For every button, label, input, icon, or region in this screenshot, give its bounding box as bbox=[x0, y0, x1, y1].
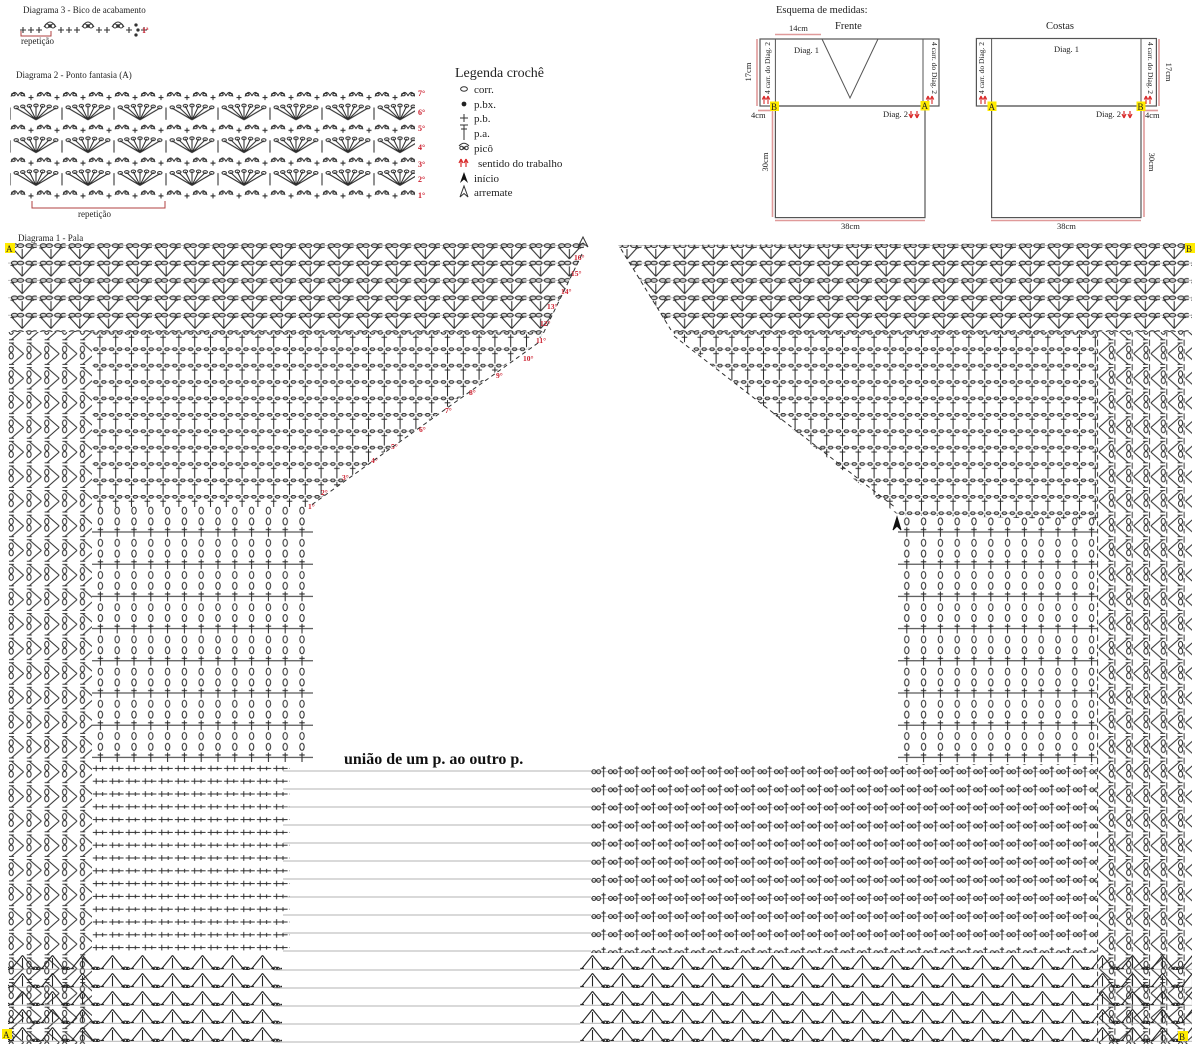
svg-text:Diag. 2: Diag. 2 bbox=[1096, 109, 1121, 119]
svg-text:Costas: Costas bbox=[1046, 21, 1074, 32]
svg-text:13°: 13° bbox=[547, 302, 558, 311]
svg-text:4cm: 4cm bbox=[1145, 110, 1160, 120]
svg-text:início: início bbox=[474, 173, 500, 185]
svg-text:picô: picô bbox=[474, 143, 493, 155]
svg-text:4 carr. do Diag. 2: 4 carr. do Diag. 2 bbox=[977, 42, 986, 94]
svg-text:A: A bbox=[3, 1030, 10, 1040]
svg-text:p.a.: p.a. bbox=[474, 128, 490, 140]
svg-text:Diagrama 3 - Bico de acabament: Diagrama 3 - Bico de acabamento bbox=[23, 5, 146, 15]
svg-text:16°: 16° bbox=[574, 253, 585, 262]
svg-text:A: A bbox=[989, 102, 996, 112]
svg-text:5°: 5° bbox=[391, 442, 398, 451]
svg-text:2°: 2° bbox=[418, 175, 425, 184]
svg-text:5°: 5° bbox=[418, 124, 425, 133]
svg-text:7°: 7° bbox=[418, 89, 425, 98]
svg-text:repetição: repetição bbox=[21, 36, 54, 46]
svg-text:9°: 9° bbox=[496, 371, 503, 380]
svg-text:p.b.: p.b. bbox=[474, 113, 491, 125]
svg-text:corr.: corr. bbox=[474, 84, 494, 96]
svg-text:Diag. 2: Diag. 2 bbox=[883, 109, 908, 119]
svg-text:4 carr. do Diag. 2: 4 carr. do Diag. 2 bbox=[763, 42, 772, 94]
svg-text:Legenda crochê: Legenda crochê bbox=[455, 66, 544, 81]
svg-text:B: B bbox=[771, 102, 777, 112]
svg-text:Esquema de medidas:: Esquema de medidas: bbox=[776, 5, 868, 16]
svg-text:arremate: arremate bbox=[474, 187, 513, 199]
svg-text:Diag. 1: Diag. 1 bbox=[1054, 44, 1079, 54]
svg-text:4 carr. do Diag. 2: 4 carr. do Diag. 2 bbox=[930, 42, 939, 94]
svg-text:Diag. 1: Diag. 1 bbox=[794, 45, 819, 55]
svg-text:14cm: 14cm bbox=[789, 23, 808, 33]
svg-text:A: A bbox=[922, 101, 929, 111]
svg-text:14°: 14° bbox=[561, 287, 572, 296]
svg-text:4 carr. do Diag. 2: 4 carr. do Diag. 2 bbox=[1146, 42, 1155, 94]
svg-text:Diagrama 1 - Pala: Diagrama 1 - Pala bbox=[18, 233, 83, 243]
svg-text:17cm: 17cm bbox=[743, 62, 753, 81]
svg-text:38cm: 38cm bbox=[1057, 221, 1076, 231]
svg-text:3°: 3° bbox=[418, 160, 425, 169]
svg-text:6°: 6° bbox=[419, 425, 426, 434]
svg-text:B: B bbox=[1186, 244, 1192, 254]
svg-text:30cm: 30cm bbox=[1147, 153, 1157, 172]
svg-text:repetição: repetição bbox=[78, 209, 111, 219]
svg-text:A: A bbox=[6, 244, 13, 254]
svg-text:p.bx.: p.bx. bbox=[474, 99, 496, 111]
svg-text:8°: 8° bbox=[469, 388, 476, 397]
svg-text:6°: 6° bbox=[418, 108, 425, 117]
svg-text:Diagrama 2 - Ponto fantasia (A: Diagrama 2 - Ponto fantasia (A) bbox=[16, 70, 132, 80]
svg-text:união de um p. ao outro p.: união de um p. ao outro p. bbox=[344, 751, 523, 768]
svg-text:17cm: 17cm bbox=[1164, 63, 1174, 82]
svg-text:4cm: 4cm bbox=[751, 110, 766, 120]
svg-text:10°: 10° bbox=[523, 354, 534, 363]
svg-text:B: B bbox=[1179, 1032, 1185, 1042]
svg-text:15°: 15° bbox=[571, 269, 582, 278]
svg-text:12°: 12° bbox=[540, 319, 551, 328]
svg-text:sentido do trabalho: sentido do trabalho bbox=[478, 158, 563, 170]
svg-text:30cm: 30cm bbox=[760, 152, 770, 171]
svg-text:B: B bbox=[1138, 102, 1144, 112]
svg-text:1ª: 1ª bbox=[142, 26, 149, 35]
svg-text:1°: 1° bbox=[418, 191, 425, 200]
svg-text:38cm: 38cm bbox=[841, 221, 860, 231]
svg-text:4°: 4° bbox=[418, 143, 425, 152]
svg-text:Frente: Frente bbox=[835, 21, 862, 32]
